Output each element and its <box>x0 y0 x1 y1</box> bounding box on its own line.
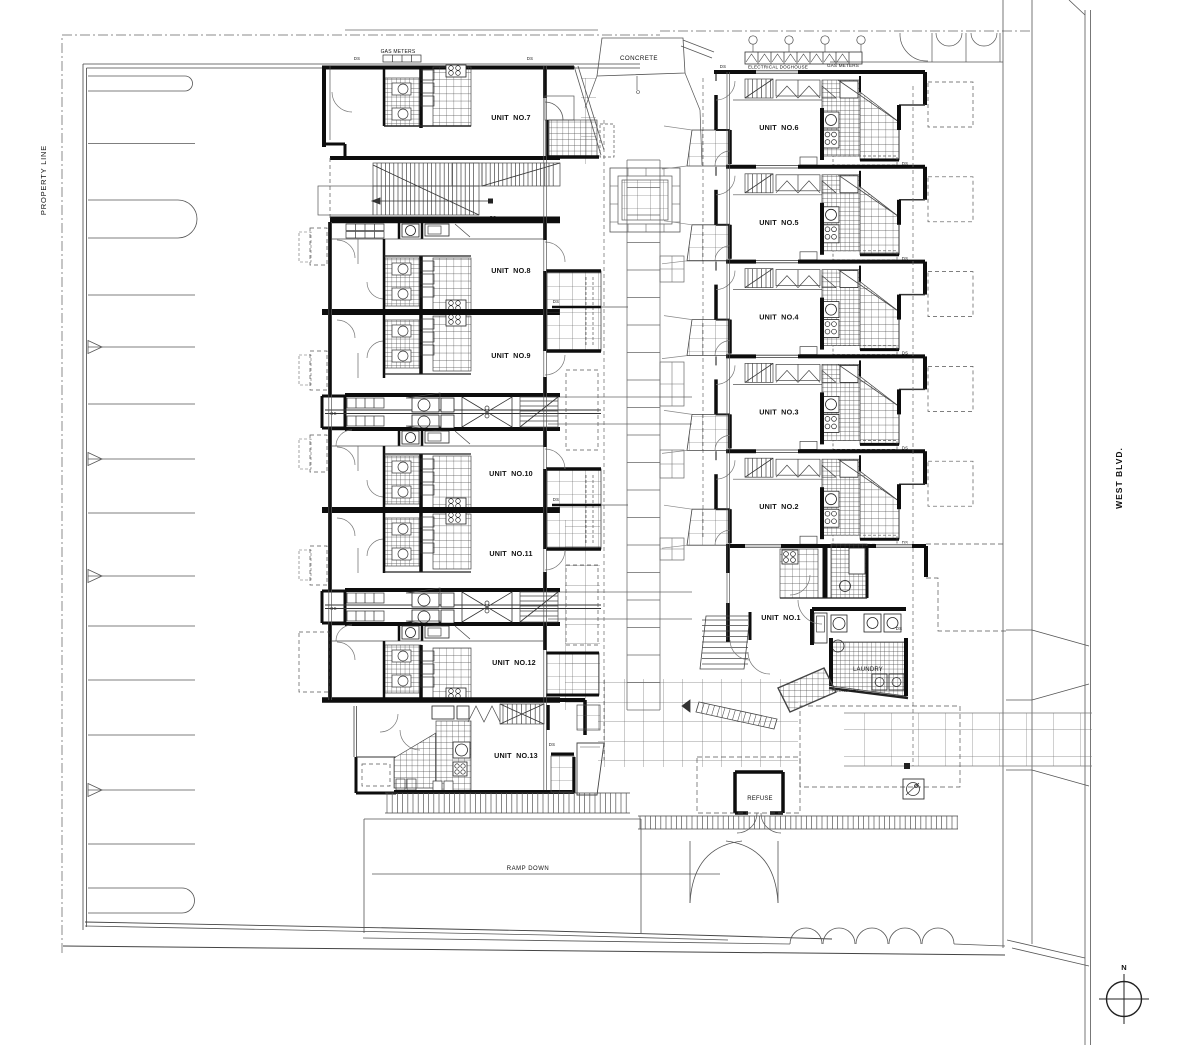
svg-text:GAS METERS: GAS METERS <box>381 49 416 55</box>
svg-text:UNIT NO.12: UNIT NO.12 <box>492 658 536 667</box>
svg-text:WEST BLVD.: WEST BLVD. <box>1114 447 1124 509</box>
svg-text:LAUNDRY: LAUNDRY <box>853 667 883 673</box>
svg-text:DS: DS <box>527 56 533 61</box>
svg-text:DS: DS <box>720 64 726 69</box>
svg-text:RAMP DOWN: RAMP DOWN <box>507 866 549 872</box>
svg-text:DS: DS <box>549 742 555 747</box>
svg-text:GAS METERS: GAS METERS <box>827 63 859 68</box>
svg-text:UNIT NO.3: UNIT NO.3 <box>759 407 799 416</box>
svg-text:DS: DS <box>490 215 496 220</box>
svg-text:UNIT NO.8: UNIT NO.8 <box>491 266 531 275</box>
svg-text:UNIT NO.7: UNIT NO.7 <box>491 113 531 122</box>
svg-text:DS: DS <box>553 299 559 304</box>
svg-text:PROPERTY LINE: PROPERTY LINE <box>39 145 48 215</box>
svg-text:UNIT NO.9: UNIT NO.9 <box>491 351 531 360</box>
svg-text:UNIT NO.6: UNIT NO.6 <box>759 123 799 132</box>
svg-text:ELECTRICAL DOGHOUSE: ELECTRICAL DOGHOUSE <box>748 65 808 70</box>
svg-text:UNIT NO.13: UNIT NO.13 <box>494 751 538 760</box>
svg-text:UNIT NO.11: UNIT NO.11 <box>489 549 532 558</box>
svg-text:UNIT NO.1: UNIT NO.1 <box>761 613 801 622</box>
svg-text:UNIT NO.2: UNIT NO.2 <box>759 502 799 511</box>
svg-text:UNIT NO.4: UNIT NO.4 <box>759 313 799 322</box>
svg-text:CONCRETE: CONCRETE <box>620 55 658 62</box>
svg-text:UNIT NO.5: UNIT NO.5 <box>759 218 799 227</box>
svg-text:REFUSE: REFUSE <box>747 796 773 802</box>
svg-text:N: N <box>1121 963 1127 972</box>
svg-text:DS: DS <box>354 56 360 61</box>
svg-text:UNIT NO.10: UNIT NO.10 <box>489 469 533 478</box>
svg-text:DS: DS <box>553 497 559 502</box>
svg-text:DS: DS <box>896 626 902 631</box>
